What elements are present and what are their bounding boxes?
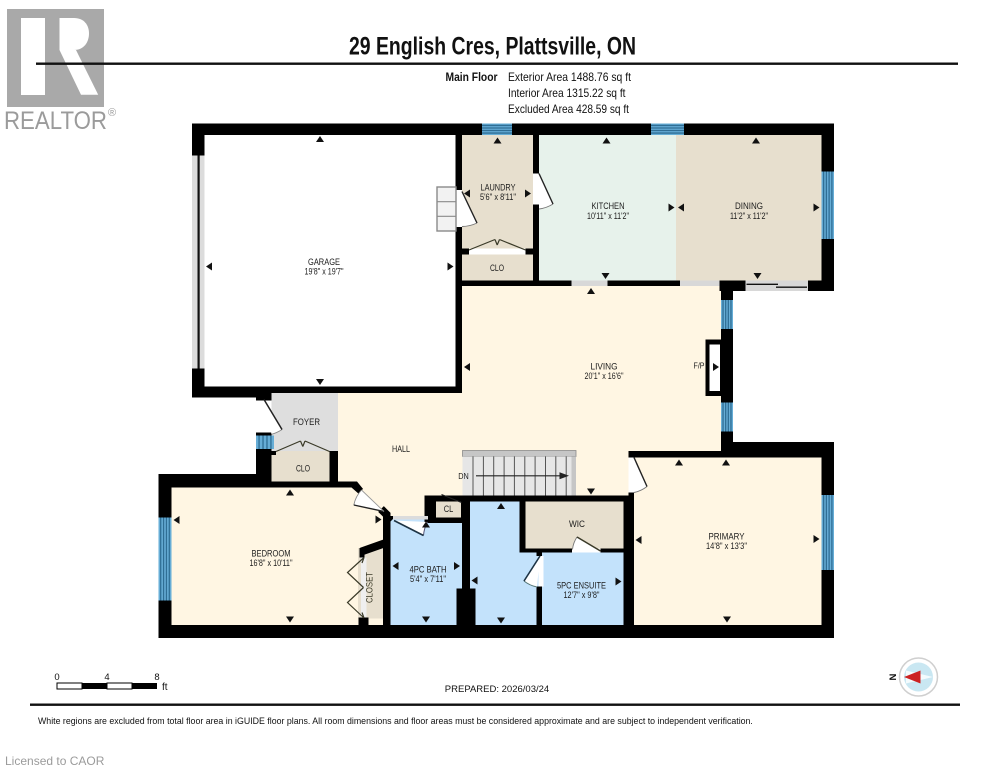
svg-text:N: N: [888, 673, 899, 680]
svg-text:LIVING: LIVING: [591, 362, 618, 372]
svg-text:CLO: CLO: [490, 263, 504, 273]
svg-text:0: 0: [54, 672, 59, 683]
svg-text:Main Floor: Main Floor: [446, 70, 498, 84]
svg-text:Exterior Area 1488.76 sq ft: Exterior Area 1488.76 sq ft: [508, 70, 632, 84]
svg-text:DN: DN: [458, 472, 469, 481]
svg-text:Interior Area 1315.22 sq ft: Interior Area 1315.22 sq ft: [508, 86, 626, 100]
svg-text:19'8" x 19'7": 19'8" x 19'7": [305, 267, 344, 277]
svg-text:4: 4: [104, 672, 109, 683]
svg-text:5'4" x 7'11": 5'4" x 7'11": [410, 574, 446, 584]
svg-text:REALTOR: REALTOR: [4, 107, 107, 135]
svg-text:CLOSET: CLOSET: [365, 571, 375, 603]
svg-text:10'11" x 11'2": 10'11" x 11'2": [587, 211, 629, 221]
svg-text:CL: CL: [444, 504, 454, 514]
svg-text:PREPARED: 2026/03/24: PREPARED: 2026/03/24: [445, 684, 549, 695]
svg-text:®: ®: [108, 107, 116, 119]
svg-text:8: 8: [154, 672, 159, 683]
svg-text:14'8" x 13'3": 14'8" x 13'3": [706, 541, 747, 551]
svg-text:LAUNDRY: LAUNDRY: [481, 183, 516, 193]
svg-text:12'7" x 9'8": 12'7" x 9'8": [564, 590, 600, 600]
svg-text:29 English Cres, Plattsville,: 29 English Cres, Plattsville, ON: [349, 33, 636, 61]
svg-text:GARAGE: GARAGE: [308, 257, 340, 267]
svg-text:Excluded Area 428.59 sq ft: Excluded Area 428.59 sq ft: [508, 102, 630, 116]
svg-text:CLO: CLO: [296, 464, 310, 474]
svg-text:5'6" x 8'11": 5'6" x 8'11": [480, 192, 516, 202]
svg-text:White regions are excluded fro: White regions are excluded from total fl…: [38, 716, 753, 726]
svg-text:16'8" x 10'11": 16'8" x 10'11": [250, 558, 293, 568]
svg-text:FOYER: FOYER: [293, 417, 320, 427]
svg-text:F/P: F/P: [694, 362, 705, 371]
svg-text:4PC BATH: 4PC BATH: [410, 565, 447, 575]
svg-text:5PC ENSUITE: 5PC ENSUITE: [557, 581, 606, 591]
svg-text:11'2" x 11'2": 11'2" x 11'2": [730, 211, 768, 221]
svg-text:BEDROOM: BEDROOM: [252, 549, 291, 559]
svg-text:KITCHEN: KITCHEN: [592, 201, 625, 211]
svg-text:ft: ft: [162, 682, 168, 693]
svg-text:HALL: HALL: [392, 444, 410, 454]
svg-text:PRIMARY: PRIMARY: [709, 532, 745, 542]
svg-text:WIC: WIC: [569, 519, 585, 529]
svg-text:DINING: DINING: [735, 201, 763, 211]
svg-text:Licensed to CAOR: Licensed to CAOR: [5, 754, 105, 768]
svg-text:20'1" x 16'6": 20'1" x 16'6": [585, 371, 624, 381]
